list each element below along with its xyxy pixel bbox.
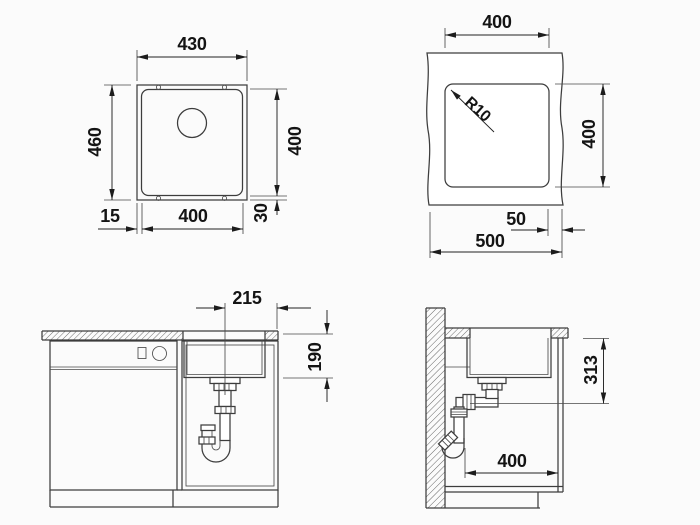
wall-hatch xyxy=(426,308,445,508)
sink-bowl-edge xyxy=(142,90,243,196)
sink-technical-drawing: 430 460 400 15 400 30 400 R10 400 50 500… xyxy=(0,0,700,525)
dim-label-outlet-height: 313 xyxy=(582,355,600,384)
dim-label-sink-rim-left: 15 xyxy=(100,207,119,225)
worktop-side-hatch-right xyxy=(551,328,568,338)
dim-label-sink-outer-depth: 460 xyxy=(86,127,104,156)
cabinet-side xyxy=(426,338,563,508)
dim-label-cabinet-clearance: 400 xyxy=(497,452,526,470)
worktop-hatch-right xyxy=(265,331,278,340)
worktop-side-hatch-left xyxy=(445,328,470,338)
dim-label-cutout-depth: 400 xyxy=(580,119,598,148)
dim-label-sink-rim-bottom: 30 xyxy=(252,203,270,222)
bowl-side-outer xyxy=(467,338,551,378)
fixing-holes xyxy=(156,85,226,200)
dim-label-sink-bowl-depth: 400 xyxy=(286,126,304,155)
dim-label-sink-outer-width: 430 xyxy=(177,35,206,53)
plinth-front xyxy=(50,490,278,507)
dishwasher-control-knob xyxy=(153,347,167,361)
dishwasher-control-slot xyxy=(138,348,146,359)
drain-hole xyxy=(178,109,207,138)
siphon-front xyxy=(199,391,235,463)
dishwasher-panel-line xyxy=(50,367,177,370)
dim-label-sink-bowl-width: 400 xyxy=(178,207,207,225)
dim-label-depth-below-counter: 190 xyxy=(306,342,324,371)
dim-label-cutout-width: 400 xyxy=(482,13,511,31)
worktop-section xyxy=(427,53,563,205)
bowl-side-inner xyxy=(470,338,548,375)
siphon-side xyxy=(439,390,498,459)
side-elevation xyxy=(426,308,609,508)
dishwasher-front xyxy=(50,341,177,490)
dim-label-drain-offset: 215 xyxy=(232,289,261,307)
front-elevation xyxy=(42,303,333,507)
drawing-canvas xyxy=(0,0,700,525)
bowl-front-outer xyxy=(184,340,265,378)
worktop-hatch-left xyxy=(42,331,183,340)
dim-label-counter-total-width: 500 xyxy=(475,232,504,250)
dim-label-cutout-edge-offset: 50 xyxy=(506,210,525,228)
strainer-side xyxy=(478,378,506,391)
sink-outer-edge xyxy=(137,85,247,200)
